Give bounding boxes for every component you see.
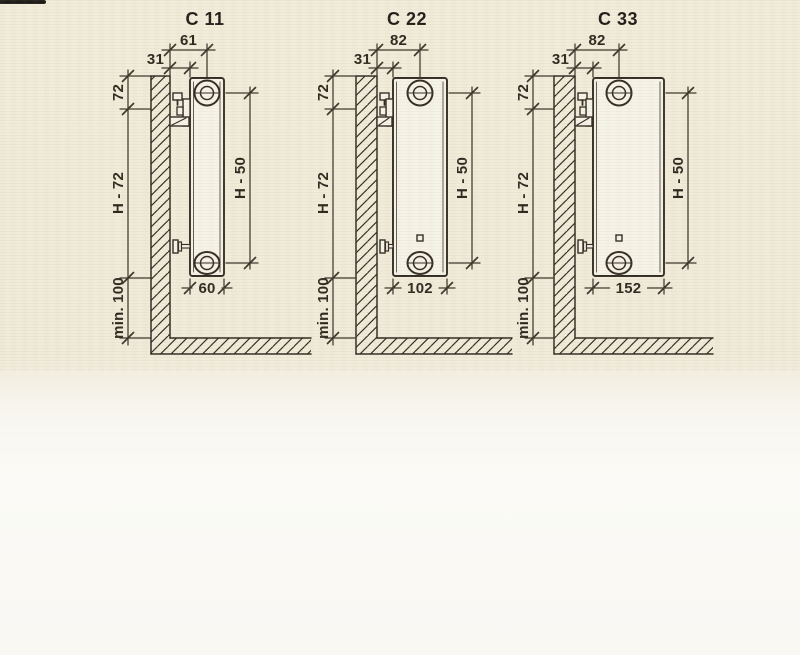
dim-height-label: H - 72 <box>110 172 127 214</box>
diagram-title: C 22 <box>387 9 427 29</box>
dim-depth-label: 61 <box>180 32 197 49</box>
dim-floor-clearance-label: min. 100 <box>515 277 532 339</box>
dim-width-label: 152 <box>616 280 642 297</box>
dim-depth-label: 82 <box>588 32 605 49</box>
dim-hub-span-label: H - 50 <box>232 157 249 199</box>
radiator-mounting-diagrams: 613172H - 72min. 100H - 5060C 11823172H … <box>0 0 800 655</box>
fixing-shaft <box>389 245 394 249</box>
bottom-fixing <box>578 240 593 253</box>
dim-depth-label: 82 <box>390 32 407 49</box>
dim-clearance-label: 31 <box>354 51 371 68</box>
service-port-square <box>417 235 423 241</box>
bracket-clip <box>380 107 386 115</box>
scanned-catalog-page: 613172H - 72min. 100H - 5060C 11823172H … <box>0 0 800 655</box>
wall-bracket <box>170 93 190 126</box>
pipe-hub-bottom <box>195 252 220 274</box>
radiator-panel <box>393 78 447 276</box>
radiator-panel <box>190 78 224 276</box>
bottom-fixing <box>380 240 393 253</box>
radiator-panel <box>593 78 664 276</box>
dim-top-offset-label: 72 <box>315 84 332 101</box>
bracket-clip <box>177 107 183 115</box>
dim-clearance-label: 31 <box>147 51 164 68</box>
wall-bracket <box>377 93 393 126</box>
dim-width-label: 60 <box>198 280 215 297</box>
dim-height-label: H - 72 <box>515 172 532 214</box>
bracket-clip <box>580 107 586 115</box>
dim-height-label: H - 72 <box>315 172 332 214</box>
fixing-head <box>380 240 385 253</box>
wall-bracket <box>575 93 593 126</box>
fixing-head <box>173 240 178 253</box>
bracket-screw-head <box>173 93 182 100</box>
diagram-c33: 823172H - 72min. 100H - 50152C 33 <box>515 9 713 354</box>
dim-top-offset-label: 72 <box>110 84 127 101</box>
dimensions: 613172H - 72min. 100H - 5060 <box>110 32 258 345</box>
diagram-c22: 823172H - 72min. 100H - 50102C 22 <box>315 9 512 354</box>
pipe-hub-top <box>195 81 220 106</box>
fixing-shaft <box>182 245 191 249</box>
dim-clearance-label: 31 <box>552 51 569 68</box>
pipe-hub-top <box>408 81 433 106</box>
diagram-title: C 33 <box>598 9 638 29</box>
dim-floor-clearance-label: min. 100 <box>315 277 332 339</box>
diagram-title: C 11 <box>185 9 224 29</box>
pipe-hub-bottom <box>607 252 632 274</box>
diagram-c11: 613172H - 72min. 100H - 5060C 11 <box>110 9 311 354</box>
dim-hub-span-label: H - 50 <box>670 157 687 199</box>
pipe-hub-bottom <box>408 252 433 274</box>
dim-hub-span-label: H - 50 <box>454 157 471 199</box>
dim-width-label: 102 <box>407 280 433 297</box>
fixing-shaft <box>587 245 594 249</box>
dim-floor-clearance-label: min. 100 <box>110 277 127 339</box>
pipe-hub-top <box>607 81 632 106</box>
dim-top-offset-label: 72 <box>515 84 532 101</box>
bottom-fixing <box>173 240 190 253</box>
service-port-square <box>616 235 622 241</box>
fixing-head <box>578 240 583 253</box>
